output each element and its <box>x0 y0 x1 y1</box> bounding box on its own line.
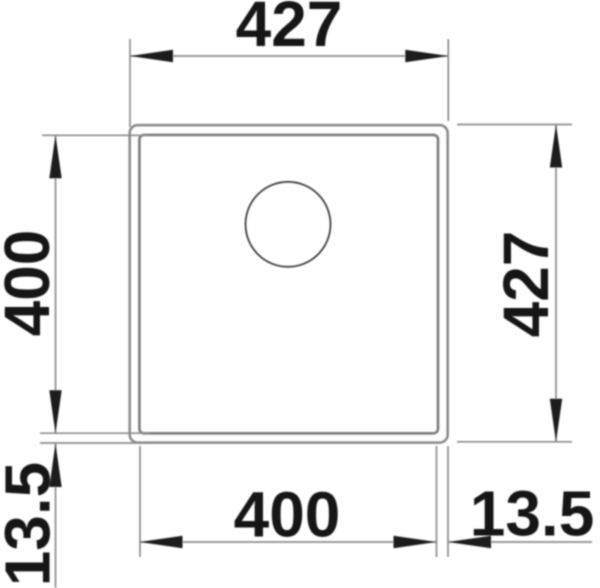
svg-text:400: 400 <box>234 479 341 551</box>
svg-text:13.5: 13.5 <box>0 462 64 587</box>
svg-text:13.5: 13.5 <box>470 478 595 550</box>
svg-text:427: 427 <box>236 0 343 60</box>
svg-text:400: 400 <box>0 230 63 337</box>
svg-text:427: 427 <box>490 231 562 338</box>
